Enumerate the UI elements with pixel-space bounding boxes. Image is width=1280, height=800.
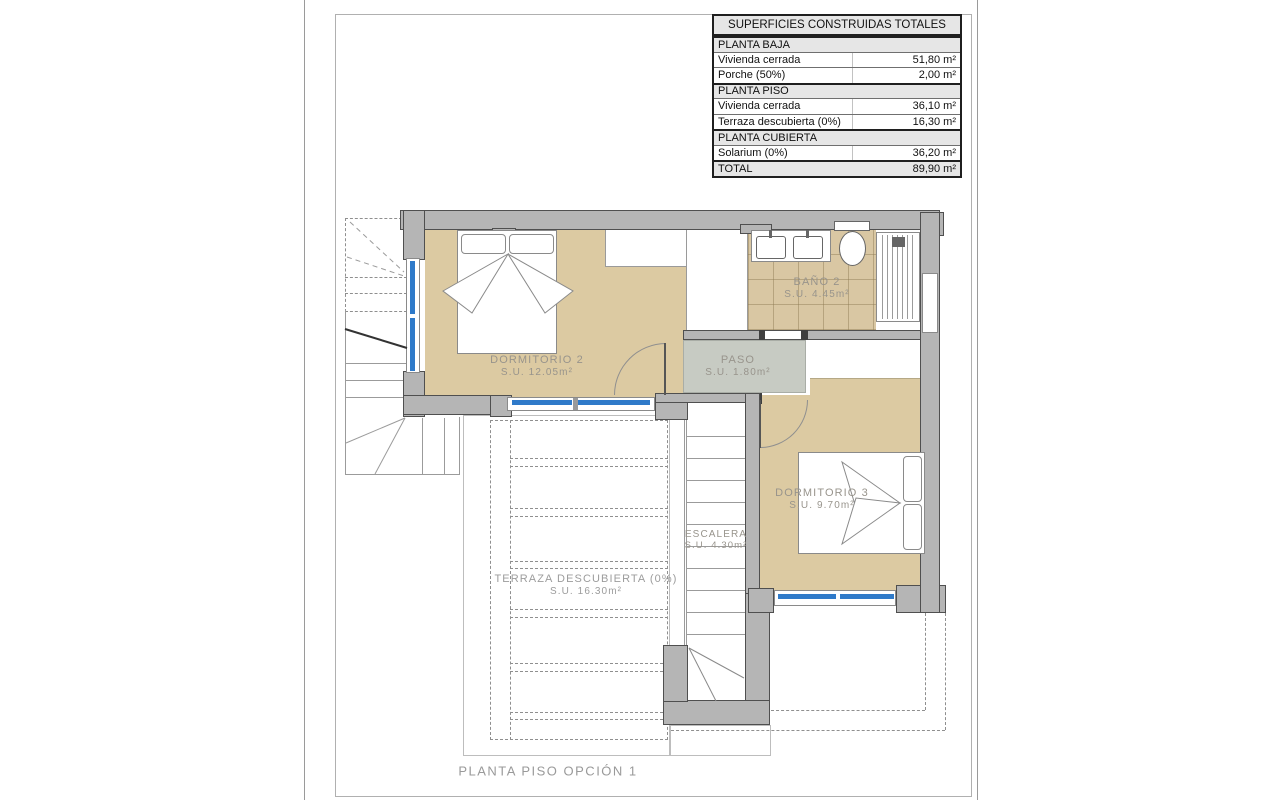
table-row: Solarium (0%) 36,20 m²: [714, 145, 960, 161]
door-jamb: [801, 330, 808, 340]
toilet: [839, 231, 866, 266]
ext-stair-dashed: [345, 218, 407, 312]
label-dormitorio3: DORMITORIO 3 S.U. 9.70m²: [775, 487, 869, 511]
window-glass: [578, 400, 650, 405]
wall-stair-left-block: [663, 645, 688, 702]
page-edge-left: [304, 0, 305, 800]
pillow: [903, 456, 922, 502]
row-label: Porche (50%): [714, 69, 852, 81]
roof-dashed-line: [945, 613, 946, 730]
room-name: BAÑO 2: [784, 276, 849, 289]
ext-stair-dashed-tread: [345, 293, 407, 294]
floorplan-page: DORMITORIO 2 S.U. 12.05m² BAÑO 2 S.U. 4.…: [0, 0, 1280, 800]
terrace-beam-line: [510, 561, 668, 562]
label-bano2: BAÑO 2 S.U. 4.45m²: [784, 276, 849, 300]
row-value: 89,90 m²: [852, 162, 960, 176]
pillow: [509, 234, 554, 254]
ext-stair-corner: [345, 417, 460, 475]
wall-left-upper: [403, 210, 425, 260]
pillow: [903, 504, 922, 550]
plan-title: PLANTA PISO OPCIÓN 1: [458, 764, 637, 779]
table-row-total: TOTAL 89,90 m²: [714, 160, 960, 176]
dormitorio2-wardrobe: [605, 230, 686, 267]
ext-stair-tread: [345, 363, 407, 364]
dormitorio3-wardrobe-strip: [810, 378, 920, 395]
room-name: DORMITORIO 3: [775, 487, 869, 500]
ext-stair-tread: [345, 397, 407, 398]
toilet-tank: [834, 221, 870, 231]
row-label: PLANTA BAJA: [714, 39, 960, 51]
label-paso: PASO S.U. 1.80m²: [705, 354, 770, 378]
room-name: PASO: [705, 354, 770, 367]
row-label: Terraza descubierta (0%): [714, 116, 852, 128]
table-row: Vivienda cerrada 51,80 m²: [714, 52, 960, 68]
stair-landing: [687, 645, 745, 702]
window-mullion: [573, 398, 578, 410]
label-dormitorio2: DORMITORIO 2 S.U. 12.05m²: [490, 354, 584, 378]
row-label: Vivienda cerrada: [714, 100, 852, 112]
roof-dashed-line: [771, 710, 925, 711]
row-label: Vivienda cerrada: [714, 54, 852, 66]
faucet-icon: [769, 230, 772, 238]
surface-summary-table: SUPERFICIES CONSTRUIDAS TOTALES PLANTA B…: [712, 14, 962, 178]
row-label: PLANTA PISO: [714, 85, 960, 97]
table-row-section: PLANTA BAJA: [714, 36, 960, 52]
terrace-beam-line: [510, 568, 668, 569]
room-area: S.U. 4.30m²: [685, 540, 748, 551]
bath-door-opening: [765, 331, 801, 339]
table-row: Porche (50%) 2,00 m²: [714, 67, 960, 83]
window-glass: [512, 400, 572, 405]
room-area: S.U. 12.05m²: [490, 367, 584, 379]
terrace-beam-line: [510, 508, 668, 509]
page-edge-right: [977, 0, 978, 800]
row-value: 2,00 m²: [852, 68, 960, 83]
terrace-beam-line: [510, 458, 668, 459]
sink: [756, 236, 786, 259]
room-name: ESCALERA: [685, 529, 748, 541]
row-label: TOTAL: [714, 163, 852, 175]
window-glass: [410, 261, 415, 314]
room-area: S.U. 4.45m²: [784, 289, 849, 301]
room-name: TERRAZA DESCUBIERTA (0%): [494, 573, 677, 586]
window-glass: [778, 594, 836, 599]
roof-dashed-line: [925, 613, 926, 710]
row-value: 51,80 m²: [852, 53, 960, 68]
row-label: PLANTA CUBIERTA: [714, 132, 960, 144]
room-name: DORMITORIO 2: [490, 354, 584, 367]
terrace-beam-line: [510, 719, 668, 720]
terrace-beam-line: [510, 712, 668, 713]
wall-stair-dorm3: [745, 393, 760, 595]
terrace-beam-line: [510, 663, 668, 664]
room-area: S.U. 9.70m²: [775, 500, 869, 512]
door-leaf-dormitorio3: [759, 400, 761, 448]
ext-stair-tread: [444, 418, 445, 475]
row-label: Solarium (0%): [714, 147, 852, 159]
shower-drain: [892, 237, 905, 247]
wall-stair-bottom: [663, 700, 770, 725]
window-right-niche: [922, 273, 938, 333]
door-jamb: [759, 330, 765, 340]
terrace-beam-line: [510, 516, 668, 517]
label-terraza: TERRAZA DESCUBIERTA (0%) S.U. 16.30m²: [494, 573, 677, 597]
table-row-section: PLANTA PISO: [714, 83, 960, 99]
pillow: [461, 234, 506, 254]
roof-dashed-line: [671, 730, 945, 731]
table-row: Terraza descubierta (0%) 16,30 m²: [714, 114, 960, 130]
wall-dorm3-bottom-left: [748, 588, 774, 613]
door-leaf-dormitorio2: [664, 343, 666, 395]
terrace-beam-line: [510, 617, 668, 618]
window-glass: [410, 318, 415, 371]
row-value: 36,20 m²: [852, 146, 960, 161]
closet-zone: [686, 230, 748, 333]
faucet-icon: [806, 230, 809, 238]
ext-stair-dashed-tread: [345, 277, 407, 278]
terrace-beam-line: [510, 609, 668, 610]
row-value: 36,10 m²: [852, 99, 960, 114]
terrace-beam-line: [510, 671, 668, 672]
room-area: S.U. 1.80m²: [705, 367, 770, 379]
table-row: Vivienda cerrada 36,10 m²: [714, 98, 960, 114]
room-area: S.U. 16.30m²: [494, 586, 677, 598]
terrace-beam-line: [510, 466, 668, 467]
sink: [793, 236, 823, 259]
label-escalera: ESCALERA S.U. 4.30m²: [685, 529, 748, 551]
row-value: 16,30 m²: [852, 115, 960, 130]
table-row-section: PLANTA CUBIERTA: [714, 129, 960, 145]
ext-stair-tread: [345, 380, 407, 381]
window-glass: [840, 594, 894, 599]
table-title: SUPERFICIES CONSTRUIDAS TOTALES: [714, 16, 960, 36]
ext-stair-tread: [422, 418, 423, 475]
